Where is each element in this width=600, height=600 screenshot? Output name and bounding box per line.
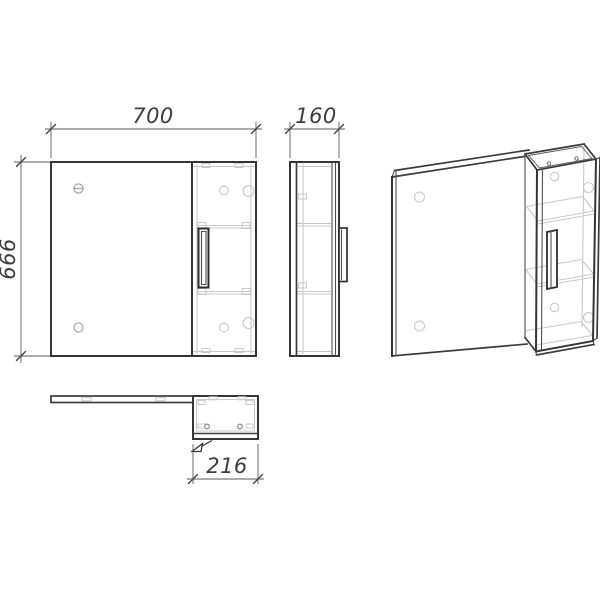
- top-view: 216: [51, 396, 264, 484]
- hole-mark: [205, 424, 210, 429]
- hole-mark: [238, 424, 243, 429]
- front-door-handle: [199, 229, 209, 288]
- dimension-front-width: 700: [45, 104, 262, 158]
- perspective-view: [392, 144, 600, 356]
- perspective-mirror-panel: [392, 150, 529, 356]
- side-view: 160: [284, 104, 347, 356]
- technical-drawing-page: 700 666: [0, 0, 600, 600]
- cabinet-plan-outline: [193, 396, 258, 439]
- front-view: 700 666: [0, 104, 262, 363]
- technical-drawing-canvas: 700 666: [0, 0, 600, 600]
- dimension-label-width: 700: [132, 104, 174, 128]
- handle-outer: [199, 229, 209, 288]
- perspective-cabinet: [525, 144, 600, 355]
- side-view-body: [290, 162, 347, 356]
- door-swing-arrow: [192, 441, 212, 452]
- arrow-tail: [202, 441, 212, 447]
- dimension-label-cabinet-width: 216: [206, 454, 248, 478]
- top-view-body: [51, 396, 258, 452]
- dimension-side-depth: 160: [284, 104, 345, 158]
- handle-outer: [547, 230, 557, 289]
- arrow-head: [192, 444, 203, 452]
- dimension-front-height: 666: [0, 155, 57, 363]
- front-left-edge: [536, 170, 537, 352]
- dimension-label-depth: 160: [295, 104, 337, 128]
- handle-outer: [339, 228, 347, 282]
- dimension-label-height: 666: [0, 238, 20, 280]
- mirror-strip: [51, 396, 193, 403]
- side-door-handle: [339, 228, 347, 282]
- perspective-door-handle: [547, 230, 557, 289]
- front-view-body: [51, 162, 256, 356]
- mirror-face: [392, 156, 527, 356]
